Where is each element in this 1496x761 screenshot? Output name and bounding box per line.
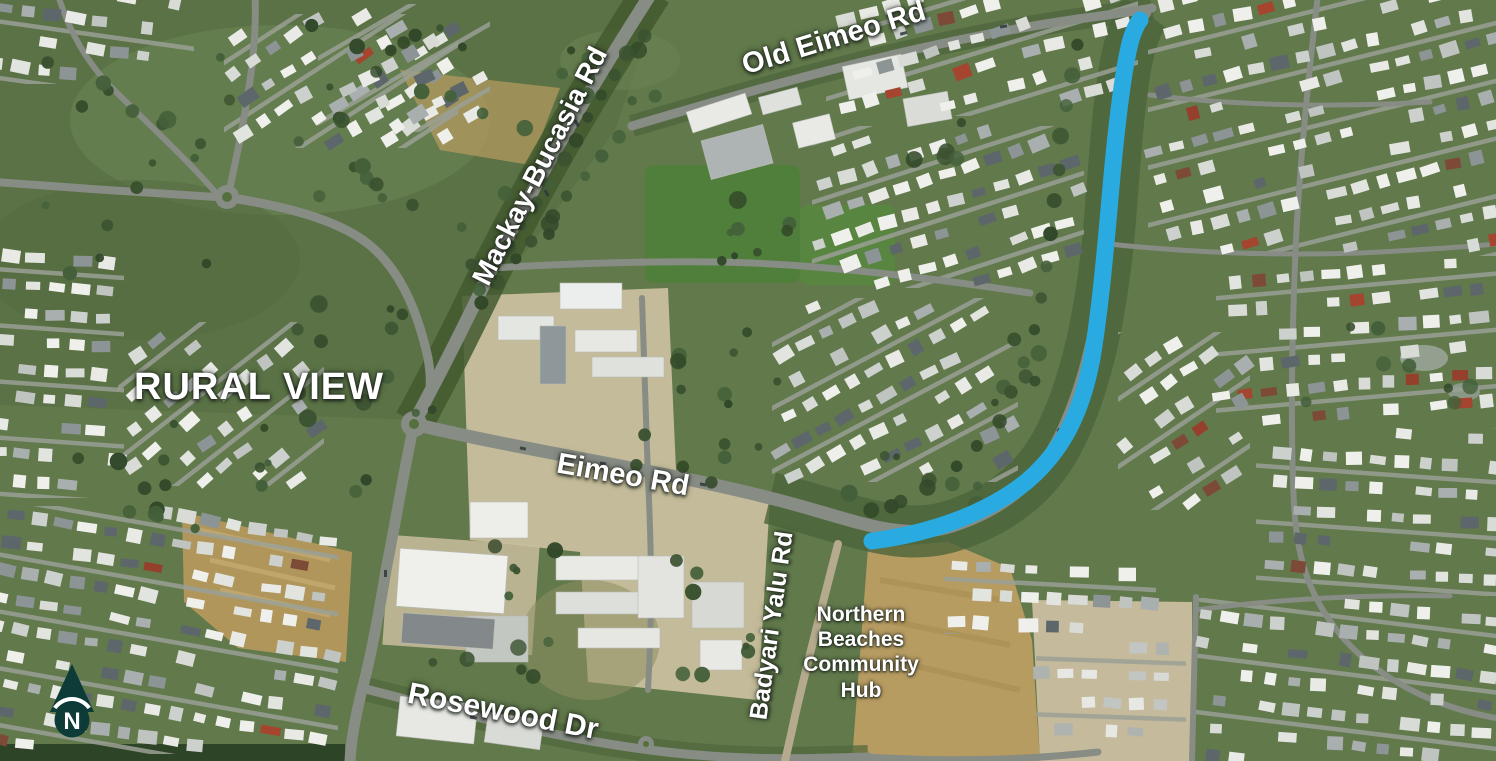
aerial-map: N Old Eimeo Rd Mackay-Bucasia Rd RURAL V…: [0, 0, 1496, 761]
north-arrow-letter: N: [63, 708, 80, 735]
suburb-label-rural-view: RURAL VIEW: [134, 366, 384, 409]
place-label-northern-beaches-community-hub: Northern Beaches Community Hub: [789, 602, 933, 703]
